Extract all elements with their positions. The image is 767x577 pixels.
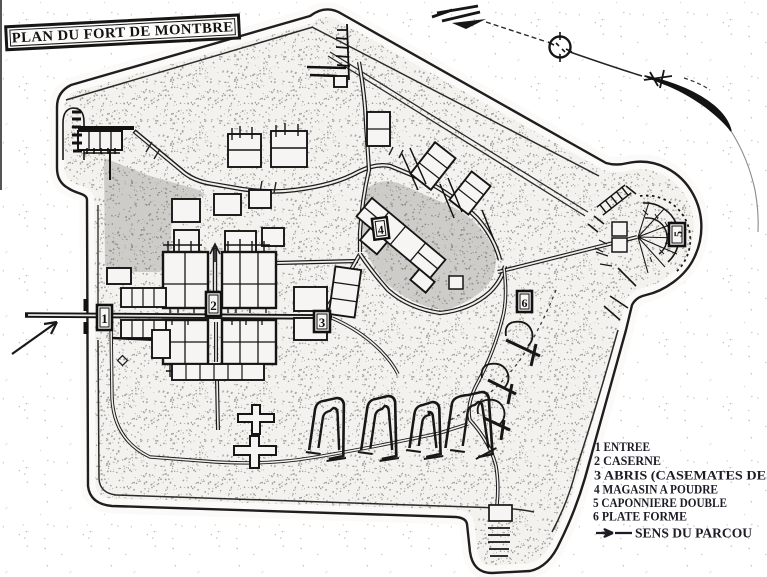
svg-text:3 ABRIS (CASEMATES DES: 3 ABRIS (CASEMATES DES [594,469,767,483]
svg-text:1 ENTREE: 1 ENTREE [595,440,650,454]
svg-text:SENS DU PARCOU: SENS DU PARCOU [635,526,752,541]
svg-text:2: 2 [210,298,217,313]
svg-text:2 CASERNE: 2 CASERNE [594,454,661,468]
svg-text:6: 6 [522,296,528,310]
svg-text:4 MAGASIN A POUDRE: 4 MAGASIN A POUDRE [594,483,718,497]
svg-text:5 CAPONNIERE DOUBLE: 5 CAPONNIERE DOUBLE [593,496,727,510]
svg-text:5: 5 [671,231,685,237]
svg-text:3: 3 [319,315,326,330]
svg-text:1: 1 [101,311,108,326]
svg-text:6 PLATE FORME: 6 PLATE FORME [593,510,687,524]
